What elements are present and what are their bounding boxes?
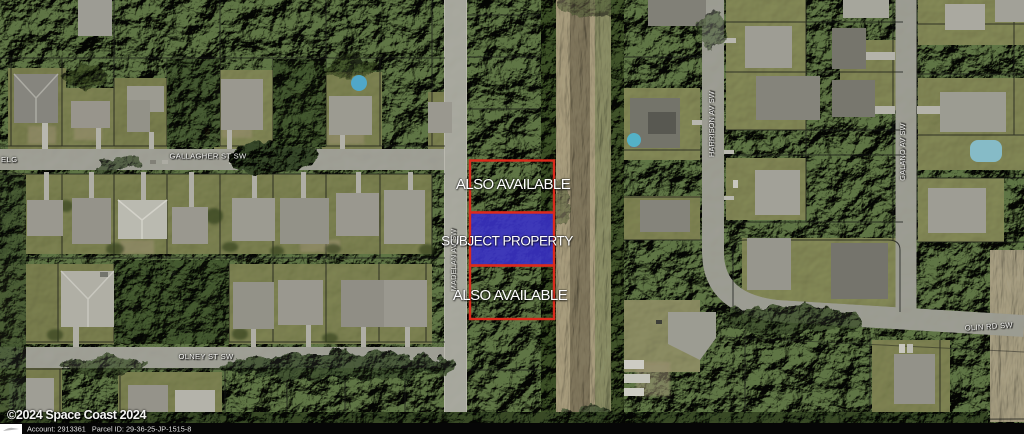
- svg-text:MADELAN AV SW: MADELAN AV SW: [449, 229, 458, 291]
- svg-text:GALANO AV SW: GALANO AV SW: [898, 123, 907, 180]
- svg-text:ALSO AVAILABLE: ALSO AVAILABLE: [453, 287, 568, 304]
- svg-text:HARRISON AV SW: HARRISON AV SW: [707, 91, 716, 157]
- svg-text:OLNEY ST SW: OLNEY ST SW: [179, 352, 234, 361]
- svg-text:SUBJECT PROPERTY: SUBJECT PROPERTY: [441, 234, 573, 249]
- svg-text:©2024 Space Coast 2024: ©2024 Space Coast 2024: [7, 408, 146, 422]
- svg-text:ALSO AVAILABLE: ALSO AVAILABLE: [456, 176, 571, 193]
- svg-text:ELG: ELG: [1, 155, 18, 164]
- svg-text:GALLAGHER ST SW: GALLAGHER ST SW: [170, 152, 247, 161]
- svg-text:Account: 2913361 Parcel ID:: Account: 2913361 Parcel ID: 29-36-25-JP-…: [27, 425, 191, 434]
